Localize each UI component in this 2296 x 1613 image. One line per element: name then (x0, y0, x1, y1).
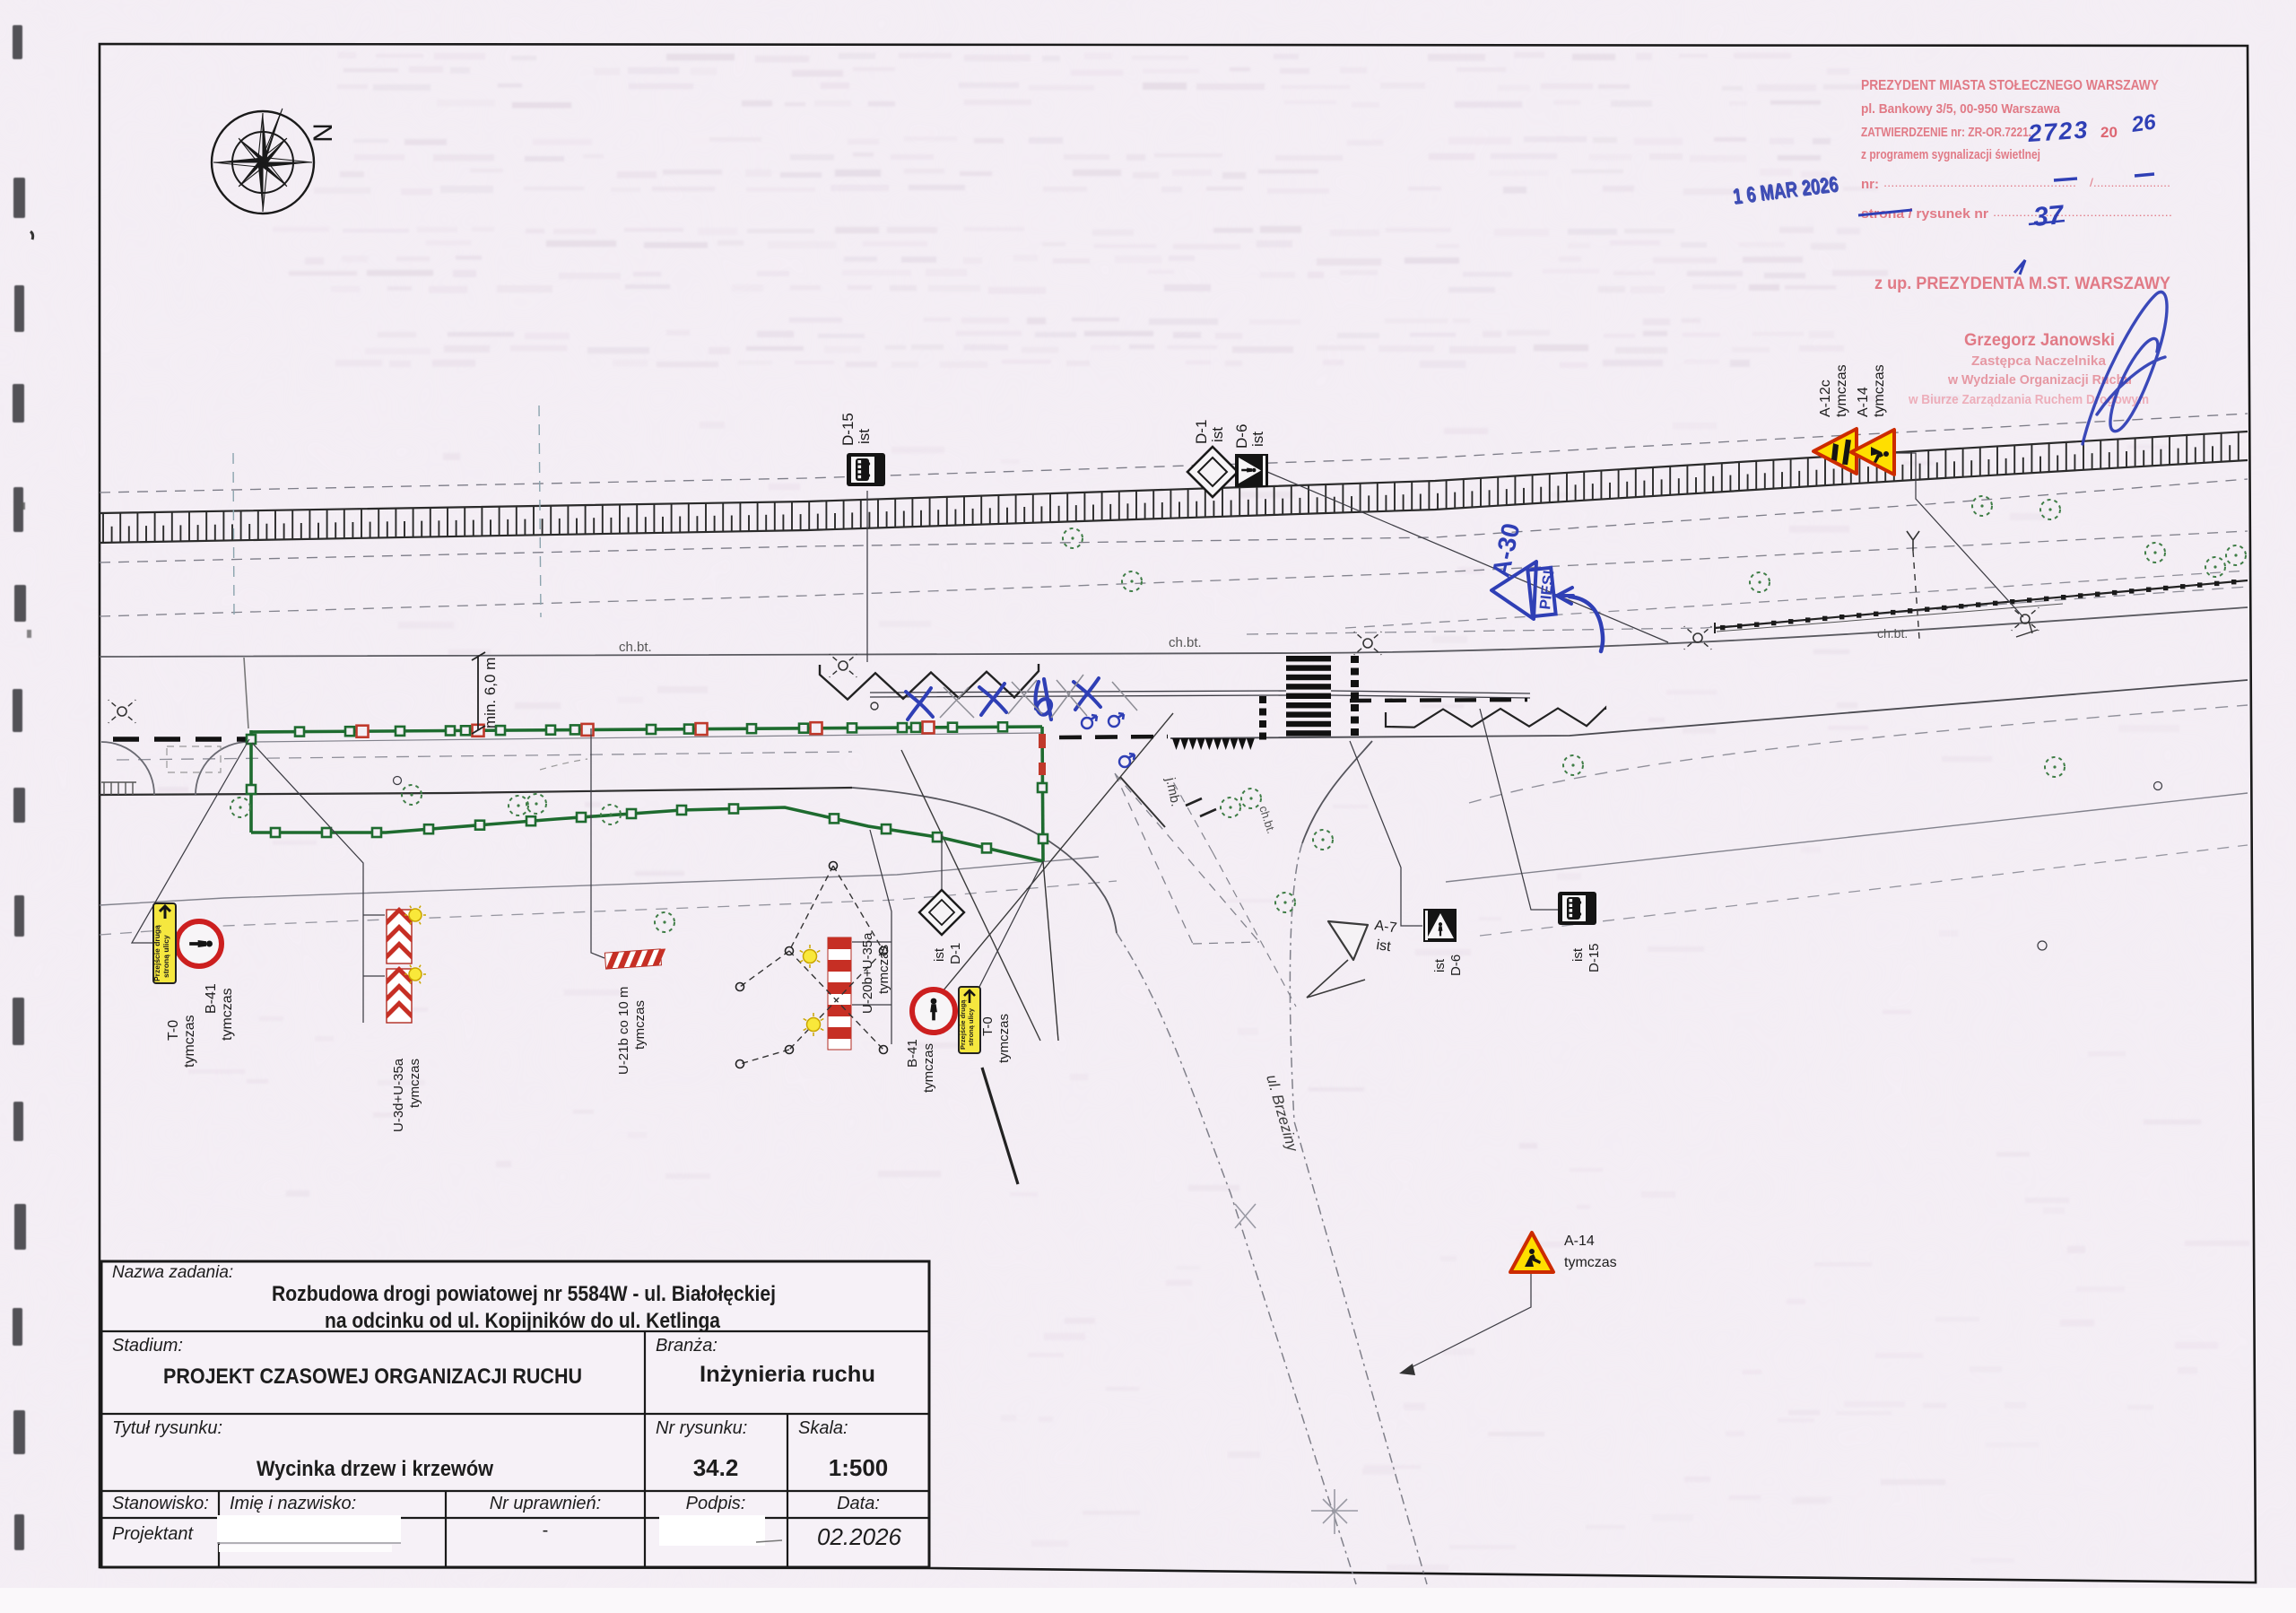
svg-text:02.2026: 02.2026 (817, 1523, 902, 1550)
svg-text:stroną ulicy: stroną ulicy (161, 935, 170, 978)
svg-text:1:500: 1:500 (829, 1454, 889, 1481)
svg-text:..............................: ........................................… (1883, 176, 2076, 189)
svg-text:PROJEKT CZASOWEJ ORGANIZACJI R: PROJEKT CZASOWEJ ORGANIZACJI RUCHU (163, 1365, 582, 1389)
svg-text:Inżynieria ruchu: Inżynieria ruchu (700, 1362, 875, 1387)
svg-text:D-1: D-1 (948, 943, 963, 964)
svg-text:A-7: A-7 (1373, 918, 1397, 936)
svg-text:Stanowisko:: Stanowisko: (112, 1494, 209, 1513)
svg-text:U-21b co 10 m: U-21b co 10 m (616, 987, 631, 1075)
svg-text:ch.bt.: ch.bt. (619, 640, 652, 655)
svg-text:tymczas: tymczas (407, 1059, 422, 1108)
svg-text:20: 20 (2100, 124, 2118, 141)
svg-text:-: - (543, 1521, 549, 1540)
svg-text:B-41: B-41 (204, 983, 219, 1014)
svg-text:tymczas: tymczas (1872, 364, 1887, 417)
svg-text:tymczas: tymczas (632, 1000, 648, 1050)
svg-text:Nr rysunku:: Nr rysunku: (656, 1418, 747, 1438)
svg-text:Przejście drugą: Przejście drugą (959, 999, 967, 1050)
svg-text:Przejście drugą: Przejście drugą (152, 925, 161, 981)
svg-text:Nazwa zadania:: Nazwa zadania: (112, 1263, 233, 1282)
svg-text:tymczas: tymczas (921, 1043, 936, 1093)
svg-text:tymczas: tymczas (1834, 364, 1849, 417)
svg-text:ist: ist (1432, 958, 1448, 972)
svg-text:T-0: T-0 (980, 1016, 996, 1036)
svg-text:ist: ist (1570, 947, 1586, 962)
svg-text:ist: ist (1249, 432, 1266, 447)
svg-text:B-41: B-41 (905, 1039, 920, 1068)
svg-text:Wycinka drzew i krzewów: Wycinka drzew i krzewów (257, 1457, 493, 1481)
svg-text:26: 26 (2129, 109, 2158, 137)
svg-text:..............................: ........................................… (1993, 205, 2172, 219)
svg-text:37: 37 (2032, 200, 2066, 232)
svg-text:T-0: T-0 (166, 1020, 181, 1041)
svg-text:U-3d+U-35a: U-3d+U-35a (391, 1058, 406, 1132)
svg-text:D-15: D-15 (839, 413, 857, 446)
svg-text:Projektant: Projektant (112, 1524, 194, 1544)
svg-text:tymczas: tymczas (876, 945, 891, 994)
svg-text:nr:: nr: (1861, 177, 1879, 192)
svg-text:D-6: D-6 (1448, 955, 1464, 976)
svg-text:ist: ist (1209, 427, 1226, 442)
svg-text:tymczas: tymczas (220, 988, 235, 1041)
svg-text:Nr uprawnień:: Nr uprawnień: (490, 1494, 602, 1513)
svg-text:z programem sygnalizacji świet: z programem sygnalizacji świetlnej (1861, 147, 2040, 162)
svg-text:tymczas: tymczas (996, 1014, 1012, 1063)
svg-text:tymczas: tymczas (1564, 1255, 1617, 1270)
svg-text:pl. Bankowy 3/5, 00-950 Warsza: pl. Bankowy 3/5, 00-950 Warszawa (1861, 101, 2061, 117)
svg-text:/......................: /...................... (2090, 176, 2170, 189)
svg-text:N: N (309, 123, 338, 143)
svg-text:Skala:: Skala: (798, 1418, 848, 1438)
svg-text:na odcinku od ul. Kopijników d: na odcinku od ul. Kopijników do ul. Ketl… (325, 1309, 721, 1333)
svg-text:PREZYDENT MIASTA STOŁECZNEGO W: PREZYDENT MIASTA STOŁECZNEGO WARSZAWY (1861, 78, 2159, 93)
svg-text:D-1: D-1 (1193, 420, 1210, 444)
svg-text:34.2: 34.2 (693, 1454, 739, 1481)
svg-text:stroną ulicy: stroną ulicy (967, 1007, 975, 1046)
svg-text:Imię i nazwisko:: Imię i nazwisko: (230, 1494, 356, 1513)
svg-text:A-14: A-14 (1856, 387, 1871, 417)
svg-text:D-15: D-15 (1587, 943, 1602, 972)
svg-text:A-12c: A-12c (1818, 379, 1833, 417)
svg-text:A-14: A-14 (1564, 1234, 1595, 1249)
svg-text:ch.bt.: ch.bt. (1877, 626, 1908, 641)
svg-text:U-20b+U-35a: U-20b+U-35a (860, 932, 875, 1014)
svg-text:Rozbudowa drogi powiatowej nr: Rozbudowa drogi powiatowej nr 5584W - ul… (272, 1282, 776, 1306)
svg-text:ZATWIERDZENIE nr: ZR-OR.7221.: ZATWIERDZENIE nr: ZR-OR.7221. (1861, 125, 2031, 140)
svg-text:z up. PREZYDENTA M.ST. WARSZAW: z up. PREZYDENTA M.ST. WARSZAWY (1874, 275, 2170, 293)
svg-text:min. 6,0 m: min. 6,0 m (482, 658, 499, 728)
svg-text:Zastępca Naczelnika: Zastępca Naczelnika (1971, 353, 2107, 369)
svg-text:Stadium:: Stadium: (112, 1336, 183, 1356)
svg-text:ist: ist (932, 947, 947, 962)
svg-text:ist: ist (1375, 937, 1392, 955)
svg-text:D-6: D-6 (1233, 424, 1250, 449)
svg-text:Tytuł rysunku:: Tytuł rysunku: (112, 1418, 222, 1438)
svg-text:Branża:: Branża: (656, 1336, 717, 1356)
svg-text:2723: 2723 (2026, 116, 2090, 147)
svg-text:ch.bt.: ch.bt. (1169, 635, 1202, 650)
svg-text:tymczas: tymczas (182, 1015, 197, 1068)
svg-text:Data:: Data: (837, 1494, 880, 1513)
svg-text:ist: ist (856, 429, 873, 444)
svg-text:Podpis:: Podpis: (686, 1494, 746, 1513)
svg-text:Grzegorz Janowski: Grzegorz Janowski (1964, 331, 2115, 350)
